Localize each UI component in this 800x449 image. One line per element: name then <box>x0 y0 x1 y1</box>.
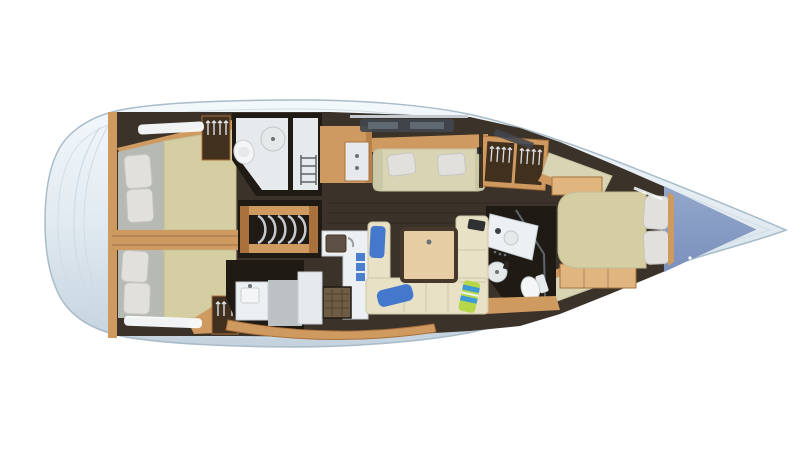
blue-accent-pillow <box>369 226 386 259</box>
panel-knob <box>355 166 359 170</box>
aft-cabin-divider <box>110 230 240 250</box>
fridge-panel <box>345 142 369 181</box>
pillow <box>126 188 154 222</box>
step-rail-left <box>240 206 249 253</box>
companionway <box>238 200 322 258</box>
floorplan-svg <box>0 0 800 449</box>
end-panel <box>298 272 322 324</box>
counter-button <box>494 251 497 254</box>
step-rail-bottom <box>249 244 309 253</box>
washbasin <box>504 231 518 245</box>
pillow <box>124 154 153 189</box>
table <box>402 229 456 281</box>
toilet-lid <box>239 147 250 158</box>
washbasin <box>241 288 259 303</box>
coachroof-window <box>350 115 468 132</box>
dinette <box>366 216 488 314</box>
settee-arm <box>373 149 383 191</box>
pillow <box>437 153 465 176</box>
stern-bulkhead-trim <box>108 112 117 338</box>
stove-unit <box>323 287 351 318</box>
counter-button <box>504 254 507 257</box>
forward-head <box>486 206 560 314</box>
step-rail-top <box>249 206 309 215</box>
shower-floor <box>268 280 302 326</box>
table-fitting <box>427 240 432 245</box>
divider-shelf <box>110 230 240 250</box>
panel-knob <box>355 154 359 158</box>
faucet <box>495 228 501 234</box>
shower-drain <box>495 270 499 274</box>
shower-drain <box>271 137 275 141</box>
pillow <box>387 152 416 176</box>
wardrobe <box>479 136 548 190</box>
aft-cabin-starboard <box>118 250 240 334</box>
handrail <box>350 115 468 118</box>
pillow <box>123 283 150 315</box>
bow-fitting-dot <box>688 256 691 259</box>
stove <box>323 287 351 318</box>
galley-sink <box>326 235 346 252</box>
salon-settee <box>372 134 488 191</box>
galley-sideboard <box>320 126 372 183</box>
burner-cover <box>356 273 365 281</box>
pillow <box>643 230 670 264</box>
island-berth-mattress <box>558 192 646 268</box>
faucet <box>248 284 252 288</box>
shower-partition <box>288 118 293 190</box>
pillow <box>121 250 149 283</box>
yacht-floorplan-image <box>0 0 800 449</box>
headboard <box>668 192 674 266</box>
burner-cover <box>356 263 365 271</box>
pillow <box>643 195 670 230</box>
window-pane <box>410 122 444 129</box>
window-pane <box>368 122 398 129</box>
burner-cover <box>356 253 365 261</box>
step-rail-right <box>309 206 318 253</box>
counter-button <box>499 253 502 256</box>
wardrobe-bulkhead-gap <box>479 134 483 188</box>
